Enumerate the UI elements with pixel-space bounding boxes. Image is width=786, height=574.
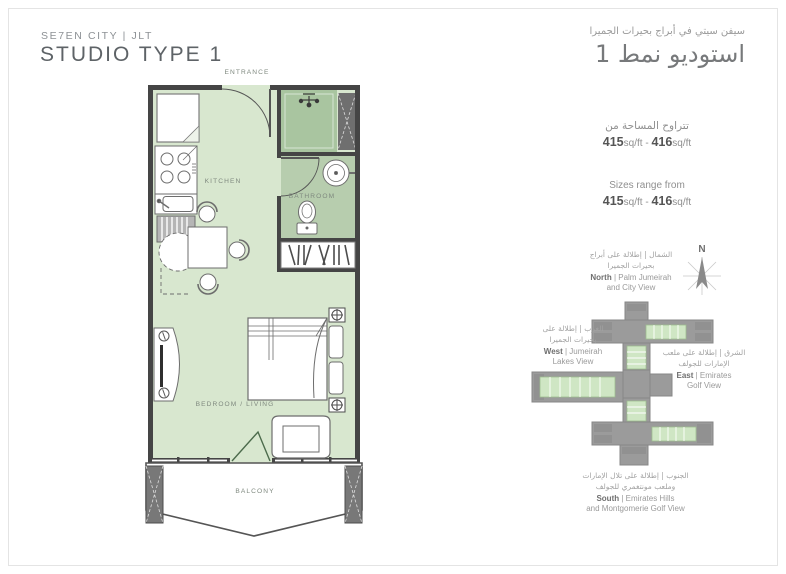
project-name: SE7EN CITY | JLT	[41, 30, 153, 42]
size-values: 415sq/ft - 416sq/ft	[562, 194, 732, 208]
tv-unit	[154, 328, 180, 401]
armchair	[272, 416, 330, 458]
size-label-arabic: تتراوح المساحة من	[562, 120, 732, 132]
services-shaft	[338, 93, 356, 150]
floorplan-drawing	[133, 60, 378, 540]
project-name-arabic: سيفن سيتي في أبراج بحيرات الجميرا	[590, 26, 745, 37]
size-label-english: Sizes range from	[562, 180, 732, 191]
wardrobe	[281, 242, 355, 268]
page-title-arabic: استوديو نمط 1	[595, 40, 745, 68]
toilet	[297, 201, 317, 234]
view-south: الجنوب | إطلالة على تلال الإماراتوملعب م…	[558, 470, 713, 515]
kitchen-sink	[155, 194, 197, 214]
stove	[155, 146, 197, 194]
size-values: 415sq/ft - 416sq/ft	[562, 135, 732, 149]
view-east: الشرق | إطلالة على ملعبالإمارات للجولف E…	[658, 347, 750, 392]
balcony-area	[146, 463, 362, 536]
bathroom-label: BATHROOM	[272, 193, 352, 200]
size-range-english: Sizes range from 415sq/ft - 416sq/ft	[562, 180, 732, 208]
entrance-label: ENTRANCE	[207, 69, 287, 76]
size-range-arabic: تتراوح المساحة من 415sq/ft - 416sq/ft	[562, 120, 732, 149]
bedroom-living-label: BEDROOM / LIVING	[175, 401, 295, 408]
balcony-label: BALCONY	[215, 488, 295, 495]
view-north: الشمال | إطلالة على أبراجبحيرات الجميرا …	[570, 249, 692, 294]
kitchen-label: KITCHEN	[183, 178, 263, 185]
brochure-page: SE7EN CITY | JLT STUDIO TYPE 1 سيفن سيتي…	[0, 0, 786, 574]
fridge	[157, 94, 199, 142]
view-west: الغرب | إطلالة علىبحيرات الجميرا West | …	[518, 323, 628, 368]
